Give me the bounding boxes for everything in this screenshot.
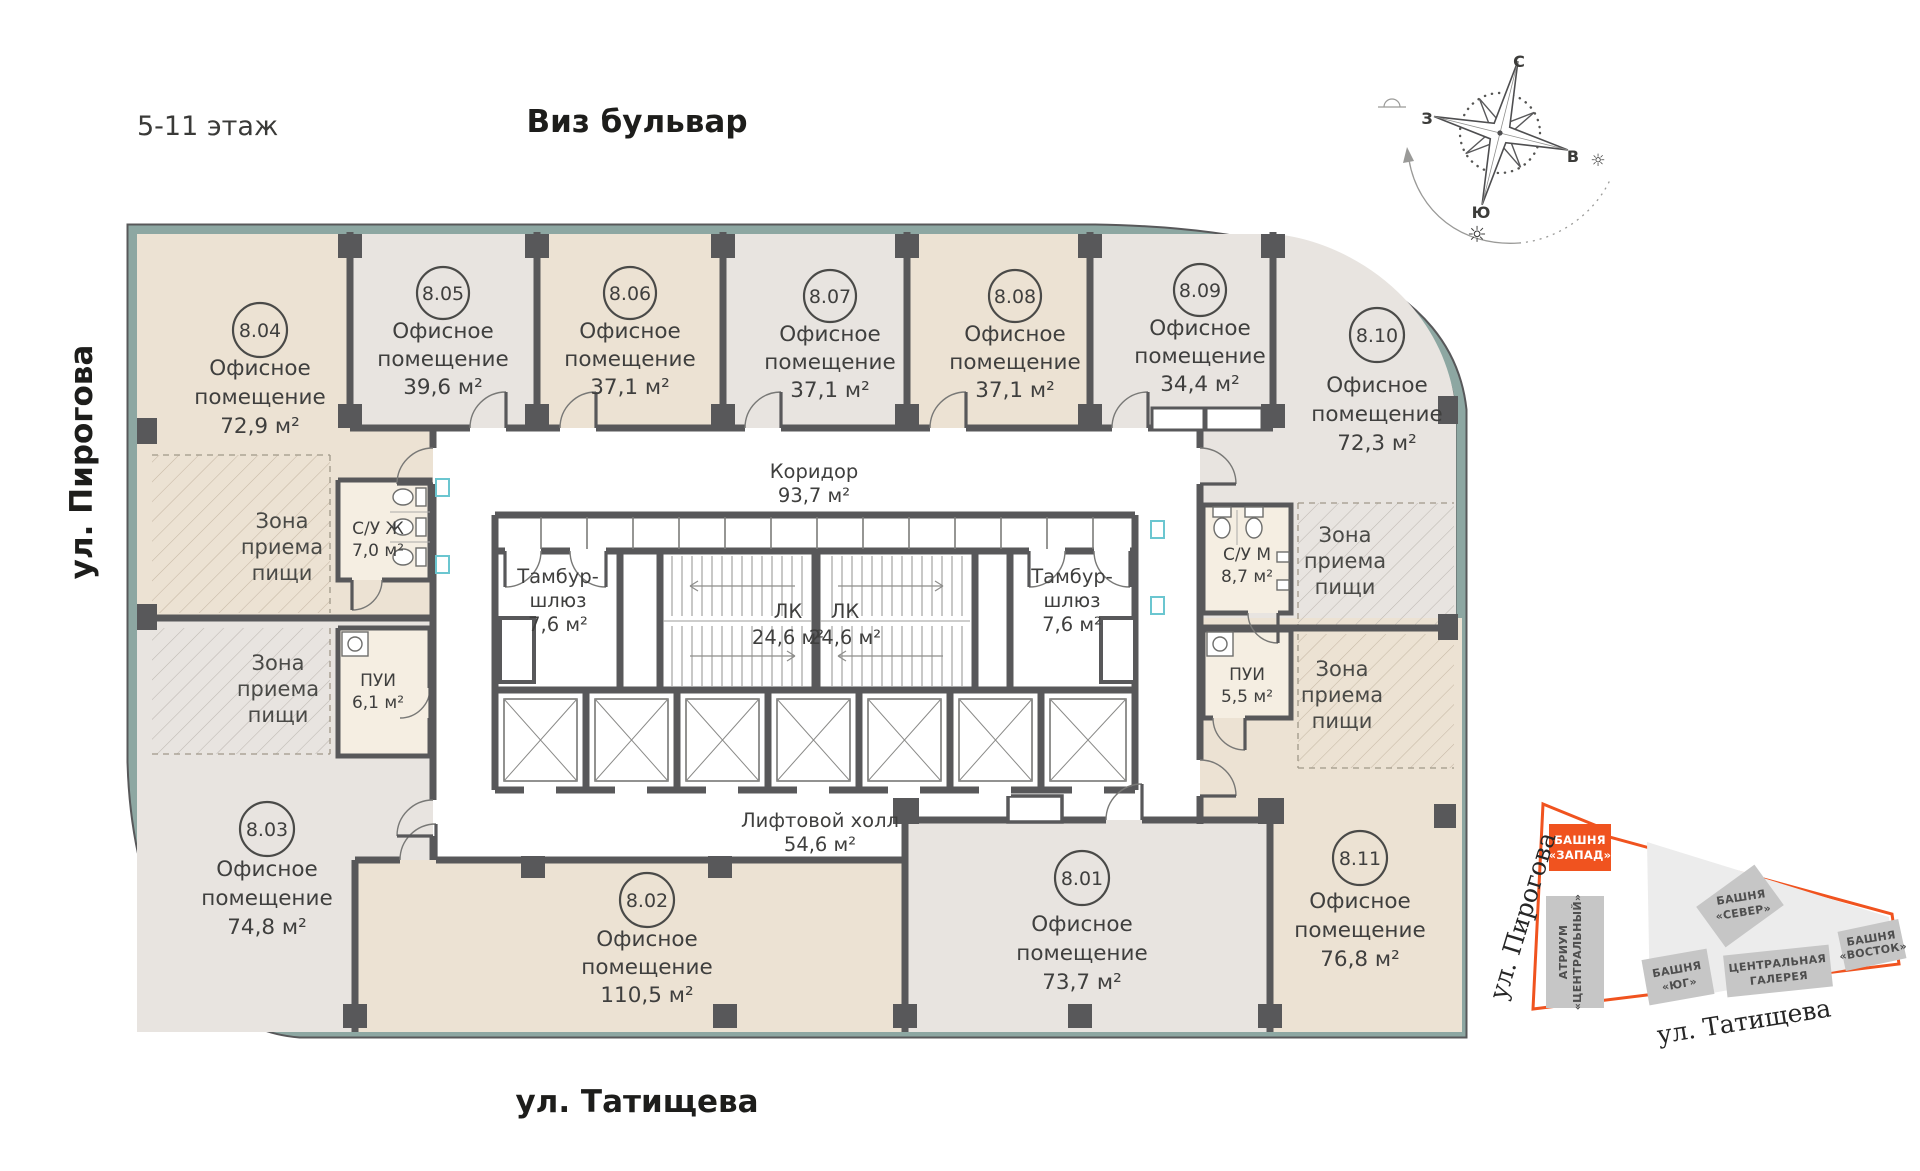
room-area: 37,1 м² xyxy=(975,378,1055,403)
svg-text:«ЦЕНТРАЛЬНЫЙ»: «ЦЕНТРАЛЬНЫЙ» xyxy=(1571,894,1584,1010)
room-area: 39,6 м² xyxy=(403,375,483,400)
compass-star-icon xyxy=(1416,45,1586,222)
floorplan-svg: 8.04 Офисное помещение 72,9 м² 8.05 Офис… xyxy=(0,0,1920,1171)
stair-right-label: ЛК xyxy=(831,600,860,623)
room-area: 76,8 м² xyxy=(1320,947,1400,972)
room-type: Офисное xyxy=(1309,889,1411,914)
svg-text:приема: приема xyxy=(1304,549,1386,573)
room-type: помещение xyxy=(1311,402,1442,427)
room-type: помещение xyxy=(1294,918,1425,943)
pui-left-label: ПУИ xyxy=(360,671,396,691)
compass-west: З xyxy=(1421,109,1432,128)
sunset-icon xyxy=(1378,99,1406,107)
room-type: Офисное xyxy=(579,319,681,344)
room-type: помещение xyxy=(194,385,325,410)
room-number: 8.09 xyxy=(1179,280,1221,302)
room-area: 110,5 м² xyxy=(600,983,693,1008)
room-number: 8.05 xyxy=(422,283,464,305)
street-left-label: ул. Пирогова xyxy=(64,345,100,580)
room-area: 37,1 м² xyxy=(790,378,870,403)
room-type: Офисное xyxy=(1149,316,1251,341)
sun-icon: ☼ xyxy=(1467,223,1487,248)
room-number: 8.04 xyxy=(239,320,281,342)
svg-text:Зона: Зона xyxy=(252,651,305,675)
room-area: 34,4 м² xyxy=(1160,372,1240,397)
room-area: 72,9 м² xyxy=(220,414,300,439)
tambur-left-area: 7,6 м² xyxy=(528,613,588,636)
street-bottom-label: ул. Татищева xyxy=(515,1084,758,1120)
svg-text:пищи: пищи xyxy=(1312,709,1373,733)
room-type: Офисное xyxy=(596,927,698,952)
svg-text:«ЗАПАД»: «ЗАПАД» xyxy=(1549,848,1612,862)
compass-north: С xyxy=(1513,52,1525,71)
minimap-atrium[interactable]: АТРИУМ «ЦЕНТРАЛЬНЫЙ» xyxy=(1546,894,1604,1010)
room-type: помещение xyxy=(581,955,712,980)
room-type: помещение xyxy=(949,350,1080,375)
compass-south: Ю xyxy=(1472,203,1491,222)
sum-label: С/У М xyxy=(1223,545,1271,565)
svg-text:пищи: пищи xyxy=(252,561,313,585)
room-type: помещение xyxy=(564,347,695,372)
lift-hall-area: 54,6 м² xyxy=(784,833,856,856)
room-type: помещение xyxy=(1134,344,1265,369)
room-number: 8.02 xyxy=(626,890,668,912)
svg-text:АТРИУМ: АТРИУМ xyxy=(1557,925,1570,980)
room-area: 72,3 м² xyxy=(1337,431,1417,456)
lift-hall-label: Лифтовой холл xyxy=(741,809,899,832)
svg-text:приема: приема xyxy=(1301,683,1383,707)
room-type: Офисное xyxy=(1326,373,1428,398)
corridor-label: Коридор xyxy=(770,460,859,483)
room-area: 37,1 м² xyxy=(590,375,670,400)
floor-label: 5-11 этаж xyxy=(137,111,278,142)
sun-icon: ☼ xyxy=(1590,151,1605,171)
tambur-left-label: Тамбур- xyxy=(516,565,599,588)
suzh-area: 7,0 м² xyxy=(352,541,404,561)
room-type: Офисное xyxy=(964,322,1066,347)
floorplan-page: 8.04 Офисное помещение 72,9 м² 8.05 Офис… xyxy=(0,0,1920,1171)
tambur-right-area: 7,6 м² xyxy=(1042,613,1102,636)
room-type: помещение xyxy=(764,350,895,375)
corridor-area: 93,7 м² xyxy=(778,484,850,507)
street-top-label: Виз бульвар xyxy=(526,104,747,140)
room-number: 8.01 xyxy=(1061,868,1103,890)
minimap-street-tatishcheva: ул. Татищева xyxy=(1655,993,1833,1049)
svg-text:приема: приема xyxy=(241,535,323,559)
sun-path-arrow-icon xyxy=(1403,147,1414,163)
room-number: 8.06 xyxy=(609,283,651,305)
tambur-right-label: Тамбур- xyxy=(1030,565,1113,588)
room-type: помещение xyxy=(377,347,508,372)
room-area: 73,7 м² xyxy=(1042,970,1122,995)
svg-text:пищи: пищи xyxy=(248,703,309,727)
room-type: помещение xyxy=(201,886,332,911)
room-type: Офисное xyxy=(209,356,311,381)
room-type: Офисное xyxy=(216,857,318,882)
room-type: помещение xyxy=(1016,941,1147,966)
stair-right-area: 24,6 м² xyxy=(809,626,881,649)
pui-right-label: ПУИ xyxy=(1229,665,1265,685)
room-type: Офисное xyxy=(392,319,494,344)
room-type: Офисное xyxy=(1031,912,1133,937)
room-number: 8.11 xyxy=(1339,848,1381,870)
compass-rose: С З В Ю ☼ ☼ xyxy=(1378,45,1610,248)
elevator-shafts xyxy=(504,699,1126,796)
room-number: 8.10 xyxy=(1356,325,1398,347)
pui-left-area: 6,1 м² xyxy=(352,693,404,713)
tambur-left-label: шлюз xyxy=(529,589,586,612)
stair-left-label: ЛК xyxy=(774,600,803,623)
svg-text:БАШНЯ: БАШНЯ xyxy=(1554,833,1606,847)
svg-text:пищи: пищи xyxy=(1315,575,1376,599)
room-number: 8.03 xyxy=(246,819,288,841)
pui-right-area: 5,5 м² xyxy=(1221,687,1273,707)
svg-text:Зона: Зона xyxy=(256,509,309,533)
site-minimap: БАШНЯ «ЗАПАД» АТРИУМ «ЦЕНТРАЛЬНЫЙ» БАШНЯ… xyxy=(1483,804,1908,1050)
svg-text:Зона: Зона xyxy=(1316,657,1369,681)
tambur-right-label: шлюз xyxy=(1043,589,1100,612)
compass-east: В xyxy=(1567,147,1579,166)
svg-text:Зона: Зона xyxy=(1319,523,1372,547)
room-number: 8.07 xyxy=(809,286,851,308)
sum-area: 8,7 м² xyxy=(1221,567,1273,587)
svg-text:приема: приема xyxy=(237,677,319,701)
suzh-label: С/У Ж xyxy=(352,519,404,539)
room-type: Офисное xyxy=(779,322,881,347)
room-number: 8.08 xyxy=(994,286,1036,308)
room-area: 74,8 м² xyxy=(227,915,307,940)
